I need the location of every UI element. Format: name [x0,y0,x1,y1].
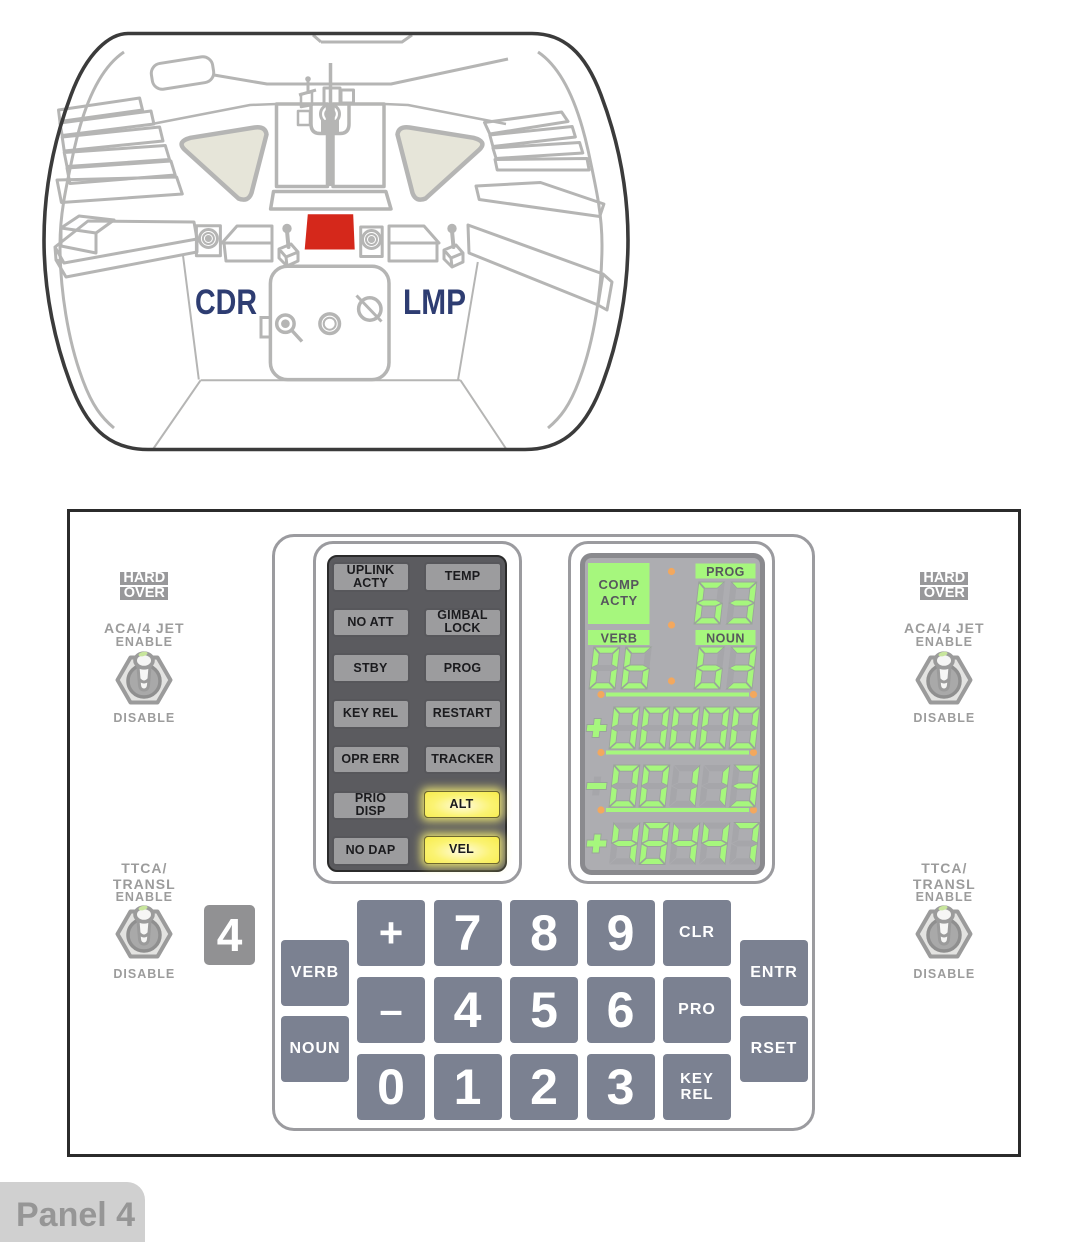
svg-text:VERB: VERB [601,632,638,646]
svg-text:COMP: COMP [599,577,640,592]
svg-text:NOUN: NOUN [706,632,745,646]
svg-text:CDR: CDR [195,283,257,322]
svg-text:ACTY: ACTY [600,593,637,608]
svg-text:LMP: LMP [403,283,466,322]
svg-text:PROG: PROG [706,565,745,579]
